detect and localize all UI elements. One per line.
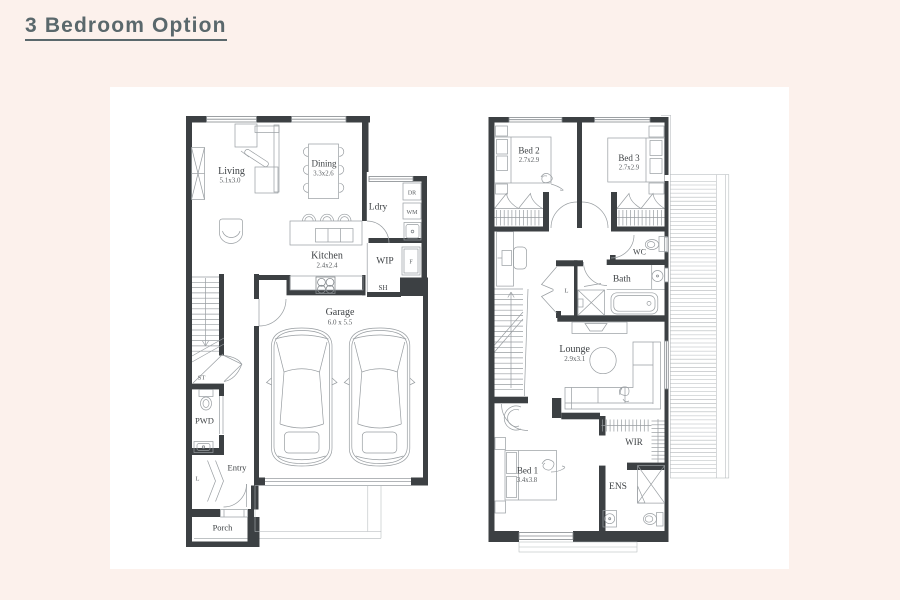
svg-text:2.9x3.1: 2.9x3.1 xyxy=(564,355,586,363)
svg-text:Bed 2: Bed 2 xyxy=(518,146,539,156)
svg-text:Bed 1: Bed 1 xyxy=(517,466,538,476)
svg-text:Porch: Porch xyxy=(213,523,234,533)
svg-text:Living: Living xyxy=(218,166,245,177)
svg-text:WC: WC xyxy=(633,248,646,257)
svg-text:SH: SH xyxy=(379,284,388,292)
svg-text:DR: DR xyxy=(408,191,416,197)
svg-text:Lounge: Lounge xyxy=(559,344,590,355)
svg-text:Bed 3: Bed 3 xyxy=(618,153,640,163)
svg-text:Ldry: Ldry xyxy=(369,203,388,213)
svg-text:WM: WM xyxy=(407,210,419,216)
svg-text:Kitchen: Kitchen xyxy=(311,251,343,262)
svg-text:F: F xyxy=(409,260,413,266)
svg-text:2.7x2.9: 2.7x2.9 xyxy=(619,165,640,172)
svg-text:Dining: Dining xyxy=(311,159,337,169)
svg-text:5.1x3.0: 5.1x3.0 xyxy=(220,177,242,185)
svg-text:Bath: Bath xyxy=(613,275,631,285)
svg-text:2.7x2.9: 2.7x2.9 xyxy=(519,157,540,164)
svg-text:3.4x3.8: 3.4x3.8 xyxy=(517,477,538,484)
svg-text:3.3x2.6: 3.3x2.6 xyxy=(313,171,334,178)
svg-text:WIP: WIP xyxy=(376,257,393,267)
svg-text:L: L xyxy=(565,288,569,295)
svg-text:6.0 x 5.5: 6.0 x 5.5 xyxy=(328,319,353,327)
svg-text:Garage: Garage xyxy=(326,307,355,318)
svg-text:L: L xyxy=(196,476,200,483)
svg-text:Entry: Entry xyxy=(228,463,248,473)
svg-text:2.4x2.4: 2.4x2.4 xyxy=(317,262,339,270)
svg-text:WIR: WIR xyxy=(625,437,643,447)
svg-text:ST: ST xyxy=(198,375,206,382)
svg-text:ENS: ENS xyxy=(609,482,627,492)
svg-text:PWD: PWD xyxy=(195,416,214,426)
